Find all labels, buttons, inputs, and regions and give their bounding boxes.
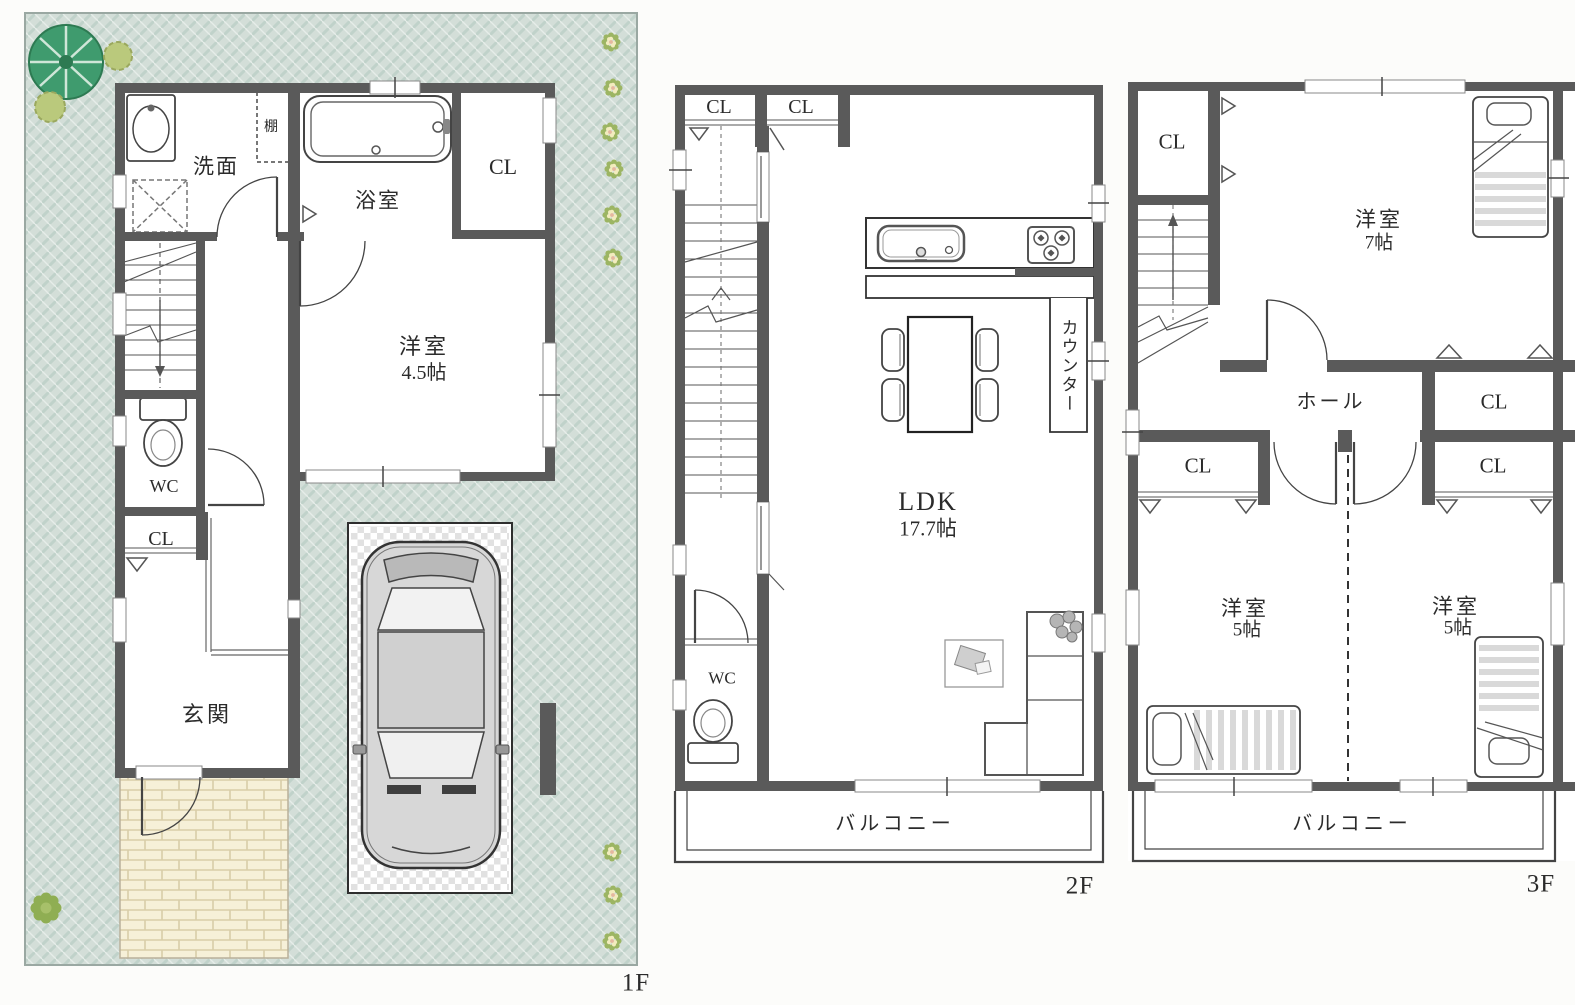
room-label-closet-left-2f: CL xyxy=(706,97,732,117)
bathtub-icon xyxy=(304,96,451,162)
room-label-entrance: 玄関 xyxy=(182,704,232,726)
floor-tag-2f: 2F xyxy=(1066,874,1094,899)
kitchen-sink-icon xyxy=(878,226,964,261)
room-label-shelf: 棚 xyxy=(264,121,278,135)
room-label-hall: ホール xyxy=(1297,392,1366,412)
bed-icon-7 xyxy=(1473,97,1548,237)
room-label-western-1f: 洋室 xyxy=(399,336,449,358)
floor-tag-3f: 3F xyxy=(1527,872,1555,897)
room-size-western-1f: 4.5帖 xyxy=(402,363,447,383)
room-label-wc-2f: WC xyxy=(708,670,735,687)
room-label-bathroom: 浴室 xyxy=(355,191,401,212)
room-size-western5-right: 5帖 xyxy=(1444,619,1473,638)
tree-icon xyxy=(29,25,103,99)
bed-icon-5-right xyxy=(1475,637,1543,777)
gate-post xyxy=(540,703,556,795)
room-label-washroom: 洗面 xyxy=(193,157,239,178)
car-icon xyxy=(353,542,509,868)
room-label-counter: カウンター xyxy=(1060,319,1077,414)
room-label-balcony-2f: バルコニー xyxy=(835,814,955,834)
room-label-closet-top-1f: CL xyxy=(489,156,517,178)
bush-icon xyxy=(35,92,65,122)
floor-plan-2f-graphic xyxy=(660,0,1115,1005)
bush-icon xyxy=(104,42,132,70)
room-size-ldk: 17.7帖 xyxy=(899,519,957,540)
brick-approach xyxy=(120,777,288,958)
room-label-balcony-3f: バルコニー xyxy=(1292,814,1412,834)
room-label-closet-bottom-left-3f: CL xyxy=(1185,456,1212,477)
room-size-western5-left: 5帖 xyxy=(1233,621,1262,640)
room-label-closet-lower-1f: CL xyxy=(148,529,174,549)
floor-plan-sheet: 洗面 棚 浴室 CL 洋室 4.5帖 WC CL 玄関 1F CL CL LDK… xyxy=(0,0,1575,1005)
room-label-western5-right: 洋室 xyxy=(1432,597,1480,618)
room-label-wc-1f: WC xyxy=(150,477,179,495)
stove-icon xyxy=(1028,227,1074,263)
bed-icon-5-left xyxy=(1147,706,1300,774)
toilet-icon-1f xyxy=(140,393,186,466)
room-label-ldk: LDK xyxy=(898,489,957,515)
room-label-closet-mid-right-3f: CL xyxy=(1481,392,1508,413)
floor-tag-1f: 1F xyxy=(622,971,650,996)
side-table-icon xyxy=(945,640,1003,687)
room-label-western7: 洋室 xyxy=(1355,210,1403,231)
room-size-western7: 7帖 xyxy=(1365,234,1394,253)
room-label-closet-top-left-3f: CL xyxy=(1159,132,1186,153)
sink-icon xyxy=(127,95,175,161)
room-label-western5-left: 洋室 xyxy=(1221,599,1269,620)
room-label-closet-bottom-right-3f: CL xyxy=(1480,456,1507,477)
floor-plan-1f-graphic xyxy=(0,0,660,1005)
plant-icon xyxy=(31,893,62,924)
room-label-closet-right-2f: CL xyxy=(788,97,814,117)
